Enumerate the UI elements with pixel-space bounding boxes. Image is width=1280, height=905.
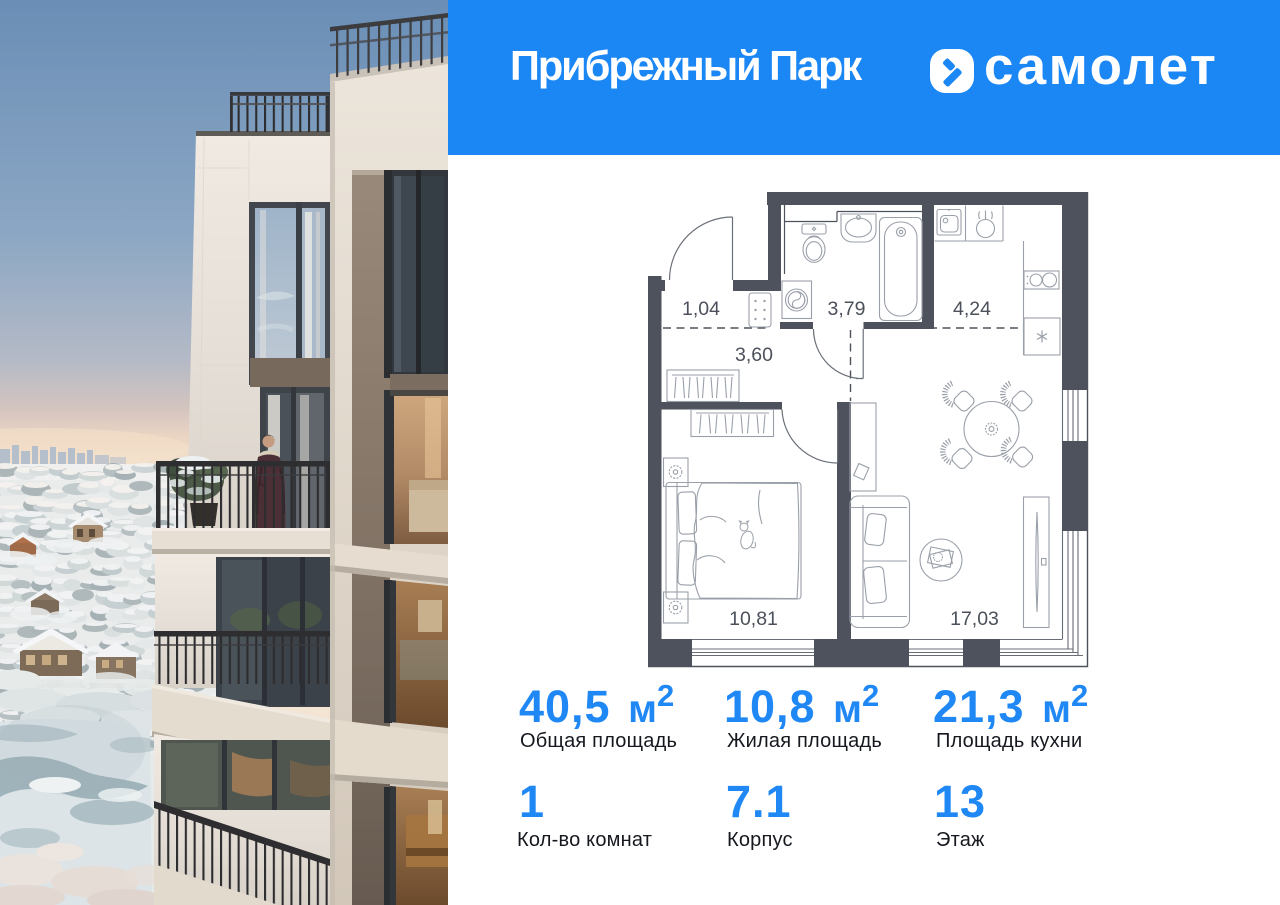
svg-text:4,24: 4,24 <box>953 298 991 320</box>
svg-text:10,81: 10,81 <box>729 608 778 630</box>
svg-text:1,04: 1,04 <box>682 298 720 320</box>
svg-text:3,79: 3,79 <box>828 298 866 320</box>
svg-text:3,60: 3,60 <box>735 344 773 366</box>
svg-text:17,03: 17,03 <box>950 608 999 630</box>
